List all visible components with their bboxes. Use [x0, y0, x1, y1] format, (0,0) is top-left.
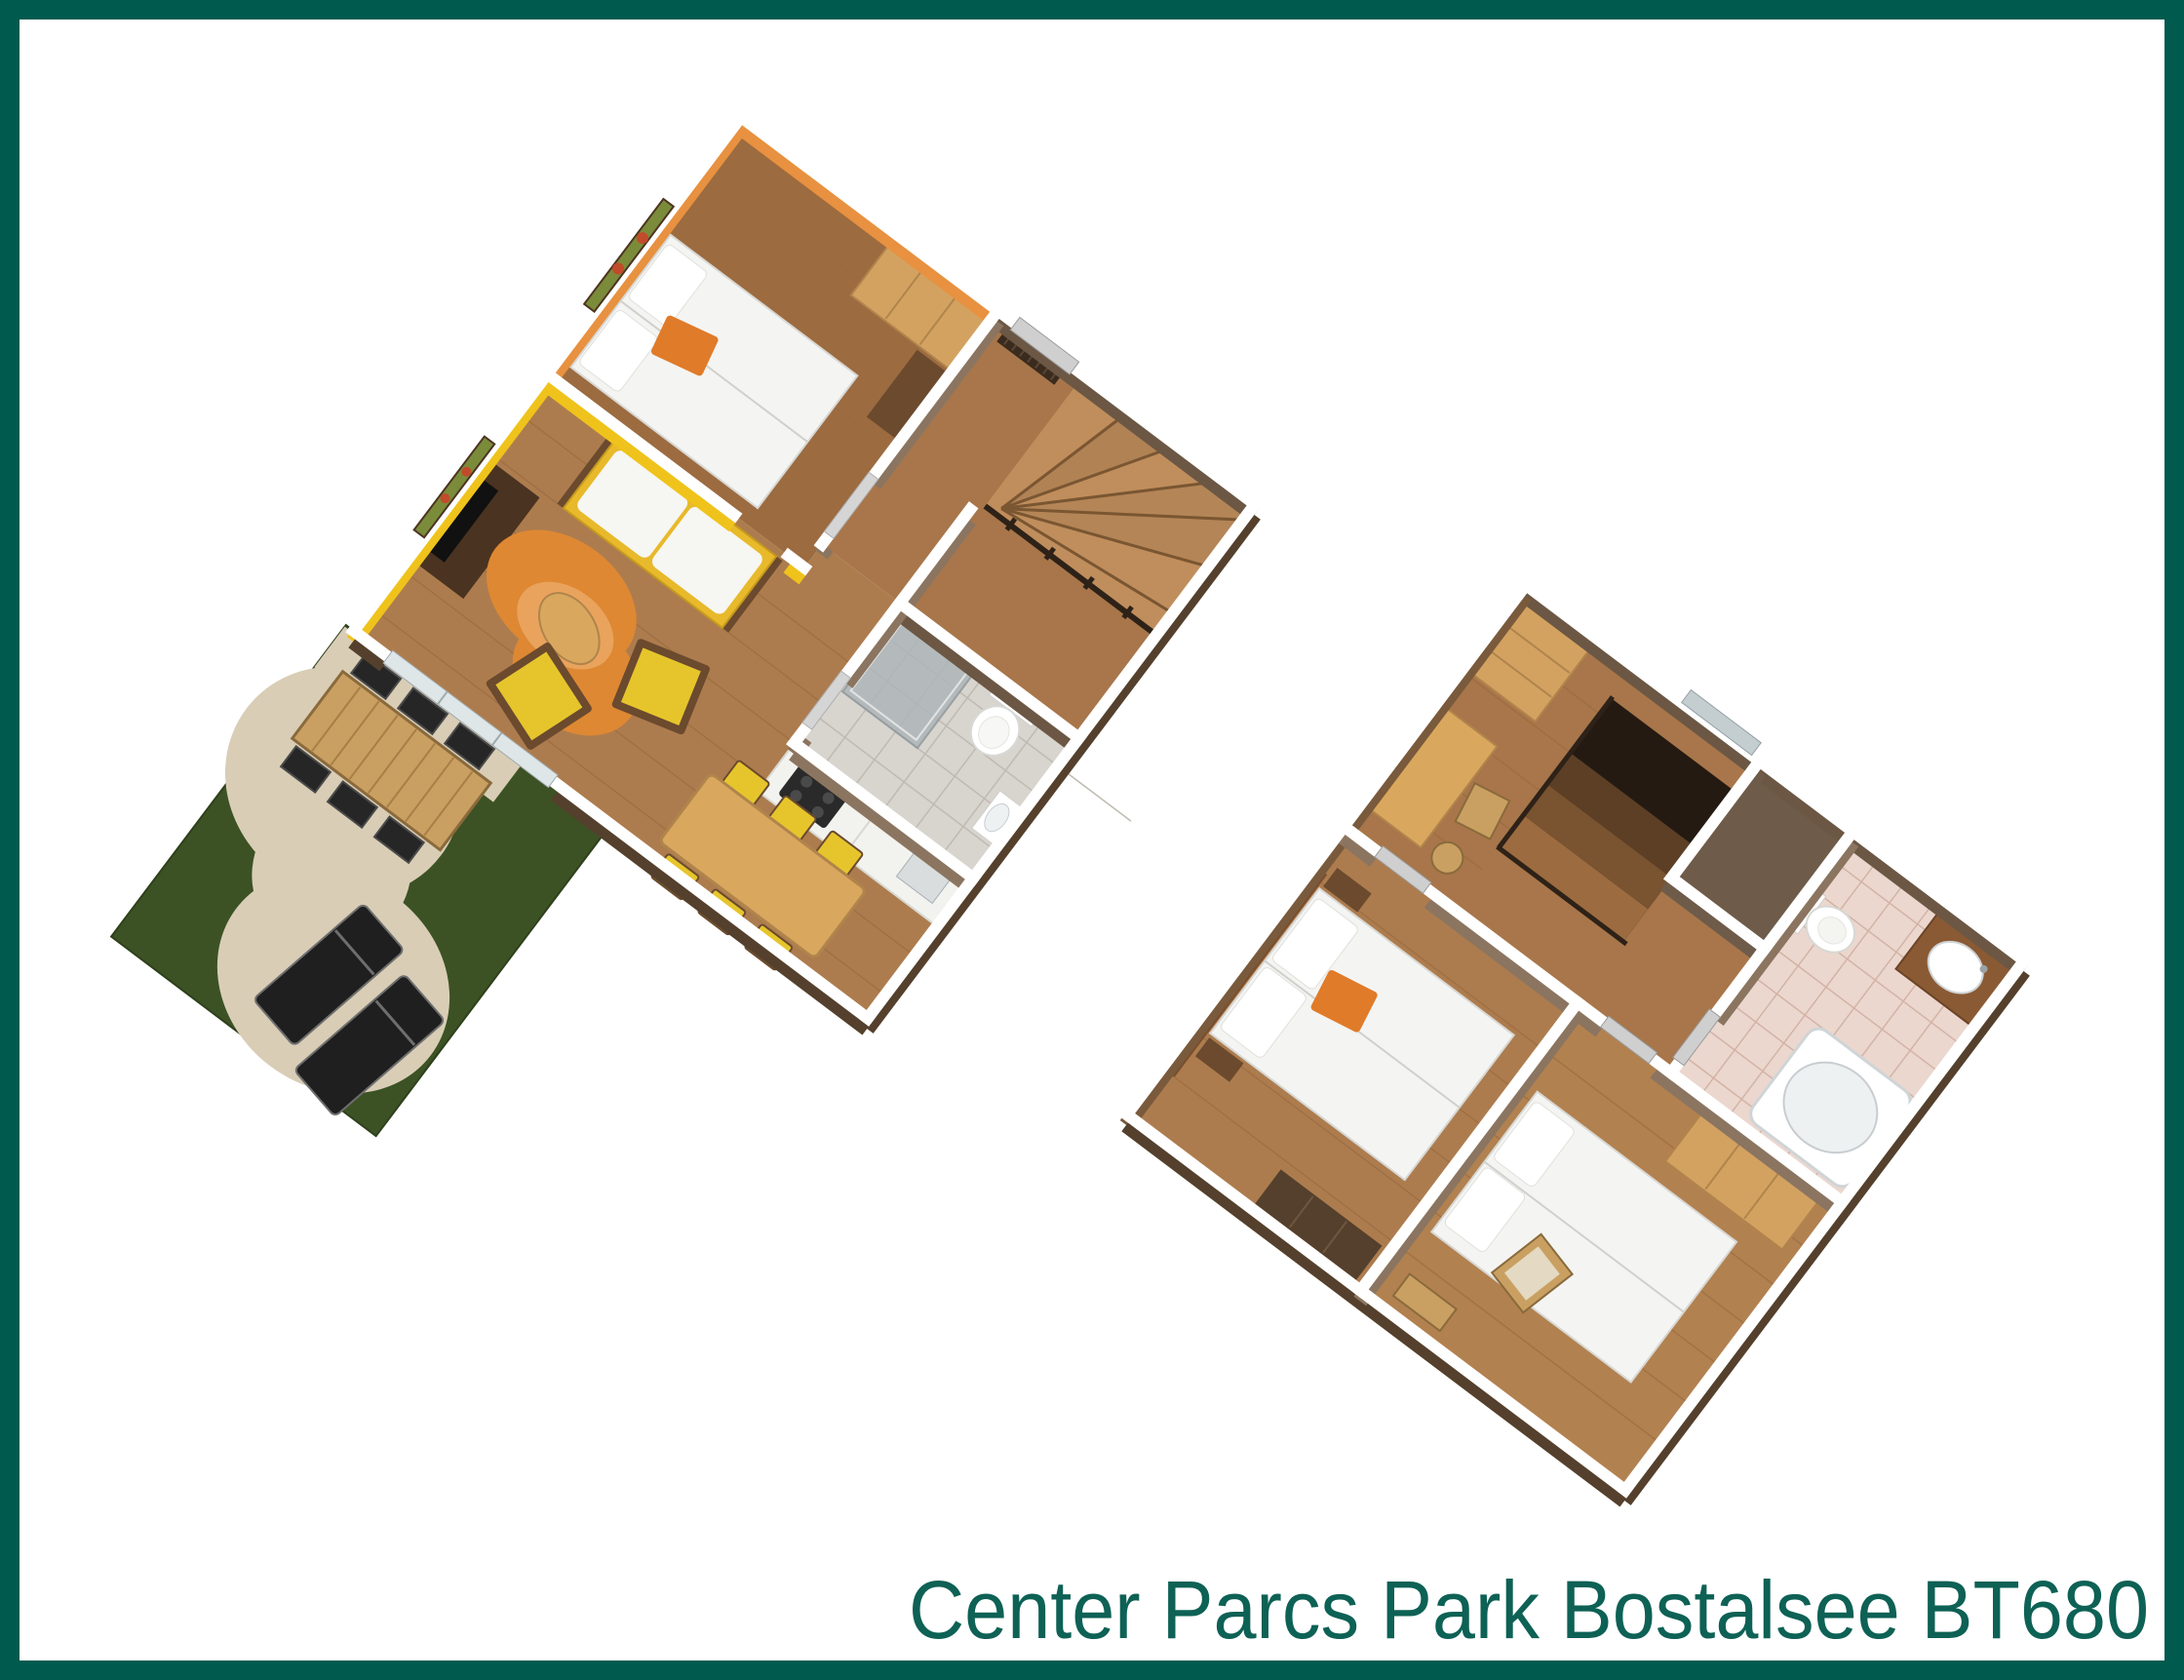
border-bottom: [0, 1660, 2184, 1680]
border-right: [2164, 0, 2184, 1680]
border-top: [0, 0, 2184, 20]
border-left: [0, 0, 19, 1680]
upper-floor-plan: [1121, 572, 2038, 1501]
caption-title: Center Parcs Park Bostalsee BT680: [909, 1564, 2149, 1656]
floorplan-page: Center Parcs Park Bostalsee BT680: [0, 0, 2184, 1680]
ground-floor-plan: [82, 88, 1333, 1393]
floorplan-canvas: Center Parcs Park Bostalsee BT680: [0, 0, 2184, 1680]
